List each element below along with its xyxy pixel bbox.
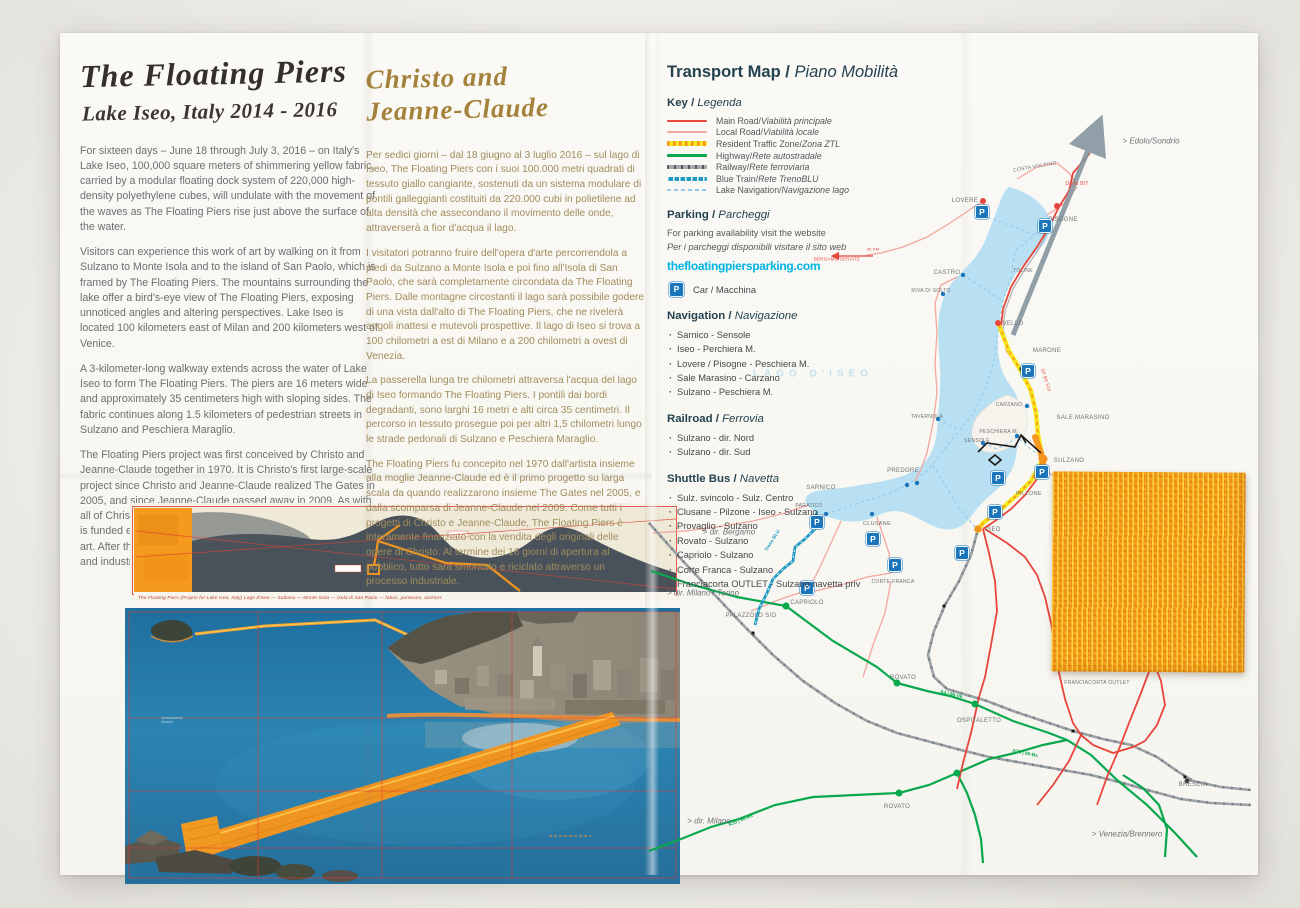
panel-italian: Christo and Jeanne-Claude Per sedici gio… — [366, 61, 646, 600]
transport-sidebar: Transport Map / Piano Mobilità Key / Leg… — [667, 63, 929, 591]
parking-heading: Parking / Parcheggi — [667, 209, 929, 221]
collage-graphic — [125, 608, 680, 884]
legend-row: Blue Train / Rete TrenoBLU — [667, 173, 929, 185]
legend-label: Main Road — [716, 116, 759, 126]
transport-title-it: Piano Mobilità — [794, 63, 898, 81]
parking-icon: P — [669, 282, 684, 297]
navigation-heading-it: Navigazione — [735, 310, 798, 322]
list-item: Corte Franca - Sulzano — [667, 563, 929, 577]
paragraph: For sixteen days – June 18 through July … — [80, 144, 378, 236]
legend-label: Railway — [716, 162, 747, 172]
separator: / — [688, 97, 698, 109]
paragraph: The Floating Piers fu concepito nel 1970… — [366, 458, 646, 590]
italian-text: Per sedici giorni – dal 18 giugno al 3 l… — [366, 149, 646, 590]
shuttle-list: Sulz. svincolo - Sulz. Centro Clusane - … — [667, 491, 929, 592]
list-item: Provaglio - Sulzano — [667, 519, 929, 533]
list-item: Sulzano - dir. Sud — [667, 445, 929, 459]
legend-row: Lake Navigation / Navigazione lago — [667, 185, 929, 197]
list-item: Sulzano - Peschiera M. — [667, 385, 929, 399]
legend-label-it: Viabilità locale — [763, 127, 819, 137]
legend-swatch-ztl — [667, 141, 707, 146]
paragraph: Visitors can experience this work of art… — [80, 245, 378, 352]
list-item: Sale Marasino - Carzano — [667, 371, 929, 385]
legend-swatch-main-road — [667, 120, 707, 123]
transport-title-en: Transport Map — [667, 63, 781, 81]
legend-label: Resident Traffic Zone — [716, 139, 799, 149]
parking-info-it: Per i parcheggi disponibili visitare il … — [667, 241, 929, 255]
key-heading-it: Legenda — [697, 97, 741, 109]
artists-title-line1: Christo and — [365, 61, 508, 95]
page-title: The Floating Piers — [80, 54, 379, 94]
key-heading: Key / Legenda — [667, 97, 929, 109]
legend-label: Local Road — [716, 127, 761, 137]
railroad-list: Sulzano - dir. Nord Sulzano - dir. Sud — [667, 431, 929, 460]
list-item: Capriolo - Sulzano — [667, 548, 929, 562]
list-item: Sulz. svincolo - Sulz. Centro — [667, 491, 929, 505]
parking-website-link: thefloatingpiersparking.com — [667, 259, 929, 273]
railroad-heading-en: Railroad — [667, 413, 713, 425]
shuttle-heading: Shuttle Bus / Navetta — [667, 473, 929, 485]
legend-label: Lake Navigation — [716, 185, 779, 195]
artists-title-line2: Jeanne-Claude — [366, 92, 549, 127]
page-subtitle: Lake Iseo, Italy 2014 - 2016 — [82, 96, 378, 126]
artwork-collage — [125, 608, 680, 884]
shuttle-heading-en: Shuttle Bus — [667, 473, 730, 485]
legend-swatch-lake-navigation — [667, 189, 707, 191]
legend-label-it: Rete TrenoBLU — [758, 174, 818, 184]
separator: / — [709, 209, 719, 221]
legend-label-it: Viabilità principale — [761, 116, 832, 126]
separator: / — [781, 63, 795, 81]
panel-english: The Floating Piers Lake Iseo, Italy 2014… — [80, 57, 378, 580]
panel-transport-map: COSTA VOLPINOLOVEREPISOGNECASTRORIVA DI … — [645, 33, 1258, 875]
key-heading-en: Key — [667, 97, 688, 109]
list-item: Rovato - Sulzano — [667, 534, 929, 548]
legend-label-it: Navigazione lago — [782, 185, 850, 195]
legend-label-it: Rete autostradale — [752, 151, 821, 161]
separator: / — [725, 310, 735, 322]
car-label: Car / Macchina — [693, 284, 756, 295]
legend-label: Blue Train — [716, 174, 756, 184]
fabric-swatch — [1051, 471, 1245, 672]
list-item: Sarnico - Sensole — [667, 328, 929, 342]
railroad-heading-it: Ferrovia — [722, 413, 764, 425]
brochure-sheet: The Floating Piers Lake Iseo, Italy 2014… — [60, 33, 1258, 875]
legend-swatch-highway — [667, 154, 707, 157]
parking-heading-it: Parcheggi — [718, 209, 769, 221]
artists-title: Christo and Jeanne-Claude — [365, 57, 647, 128]
list-item: Iseo - Perchiera M. — [667, 342, 929, 356]
shuttle-heading-it: Navetta — [740, 473, 779, 485]
list-item: Clusane - Pilzone - Iseo - Sulzano — [667, 505, 929, 519]
paragraph: A 3-kilometer-long walkway extends acros… — [80, 362, 378, 438]
list-item: Franciacorta OUTLET - Sulzano navetta pr… — [667, 577, 929, 591]
legend-swatch-blue-train — [667, 177, 707, 181]
separator: / — [730, 473, 740, 485]
parking-info-en: For parking availability visit the websi… — [667, 227, 929, 241]
legend-label: Highway — [716, 151, 750, 161]
legend-row: Main Road / Viabilità principale — [667, 115, 929, 127]
legend-label-it: Zona ZTL — [802, 139, 840, 149]
legend-swatch-railway — [667, 165, 707, 169]
navigation-heading: Navigation / Navigazione — [667, 310, 929, 322]
parking-heading-en: Parking — [667, 209, 709, 221]
legend-swatch-local-road — [667, 131, 707, 133]
legend-row: Highway / Rete autostradale — [667, 150, 929, 162]
legend-label-it: Rete ferroviaria — [749, 162, 809, 172]
photo-backdrop: The Floating Piers Lake Iseo, Italy 2014… — [0, 0, 1300, 908]
transport-map-title: Transport Map / Piano Mobilità — [667, 63, 929, 82]
navigation-list: Sarnico - Sensole Iseo - Perchiera M. Lo… — [667, 328, 929, 400]
navigation-heading-en: Navigation — [667, 310, 725, 322]
list-item: Sulzano - dir. Nord — [667, 431, 929, 445]
paragraph: Per sedici giorni – dal 18 giugno al 3 l… — [366, 149, 646, 237]
separator: / — [713, 413, 723, 425]
list-item: Lovere / Pisogne - Peschiera M. — [667, 357, 929, 371]
legend-row: Railway / Rete ferroviaria — [667, 161, 929, 173]
legend-row: Resident Traffic Zone / Zona ZTL — [667, 138, 929, 150]
car-legend-row: P Car / Macchina — [669, 282, 929, 297]
paragraph: La passerella lunga tre chilometri attra… — [366, 374, 646, 447]
railroad-heading: Railroad / Ferrovia — [667, 413, 929, 425]
legend-row: Local Road / Viabilità locale — [667, 127, 929, 139]
paragraph: I visitatori potranno fruire dell'opera … — [366, 247, 646, 365]
